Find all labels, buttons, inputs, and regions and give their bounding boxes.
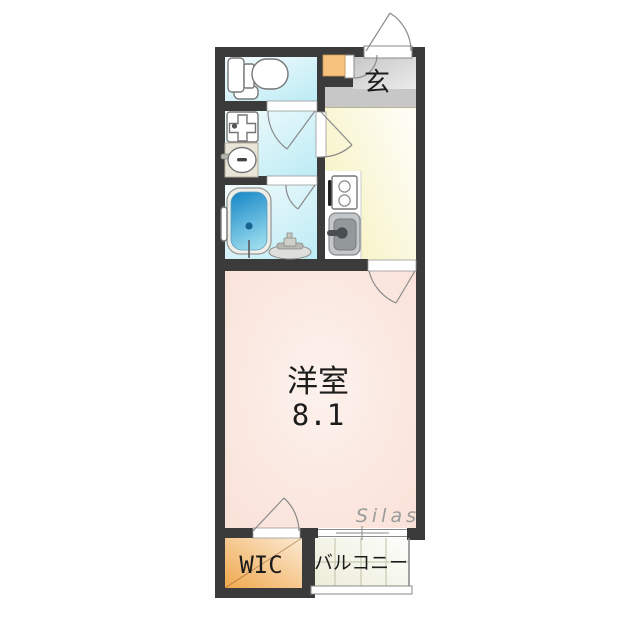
wic-label: WIC <box>239 551 282 579</box>
balcony-window <box>318 526 407 540</box>
wall-bottom <box>215 588 315 598</box>
washer-pan-icon <box>227 112 258 142</box>
bathtub-icon <box>227 188 271 258</box>
watermark: Silas <box>356 505 420 527</box>
sink-icon <box>327 213 360 255</box>
wall-right <box>416 47 425 540</box>
wall-room-bottom-mid <box>300 528 318 538</box>
balcony-label: バルコニー <box>314 552 408 574</box>
wall-room-bottom-left <box>215 528 253 538</box>
room-size-label: 8.1 <box>292 398 344 432</box>
stove-icon <box>328 176 357 209</box>
room-label: 洋室 <box>287 364 349 400</box>
shoe-cabinet <box>323 55 345 76</box>
floor-plan-drawing: 玄 洋室 8.1 WIC バルコニー Silas <box>0 0 640 640</box>
wall-left <box>215 47 225 598</box>
floor-plan: 玄 洋室 8.1 WIC バルコニー Silas <box>0 0 640 640</box>
wall-toilet-washroom <box>225 101 267 111</box>
wall-room-top <box>215 259 368 271</box>
entrance-label: 玄 <box>364 68 390 98</box>
washbasin-icon <box>221 143 258 177</box>
towel-bar-icon <box>221 207 227 241</box>
